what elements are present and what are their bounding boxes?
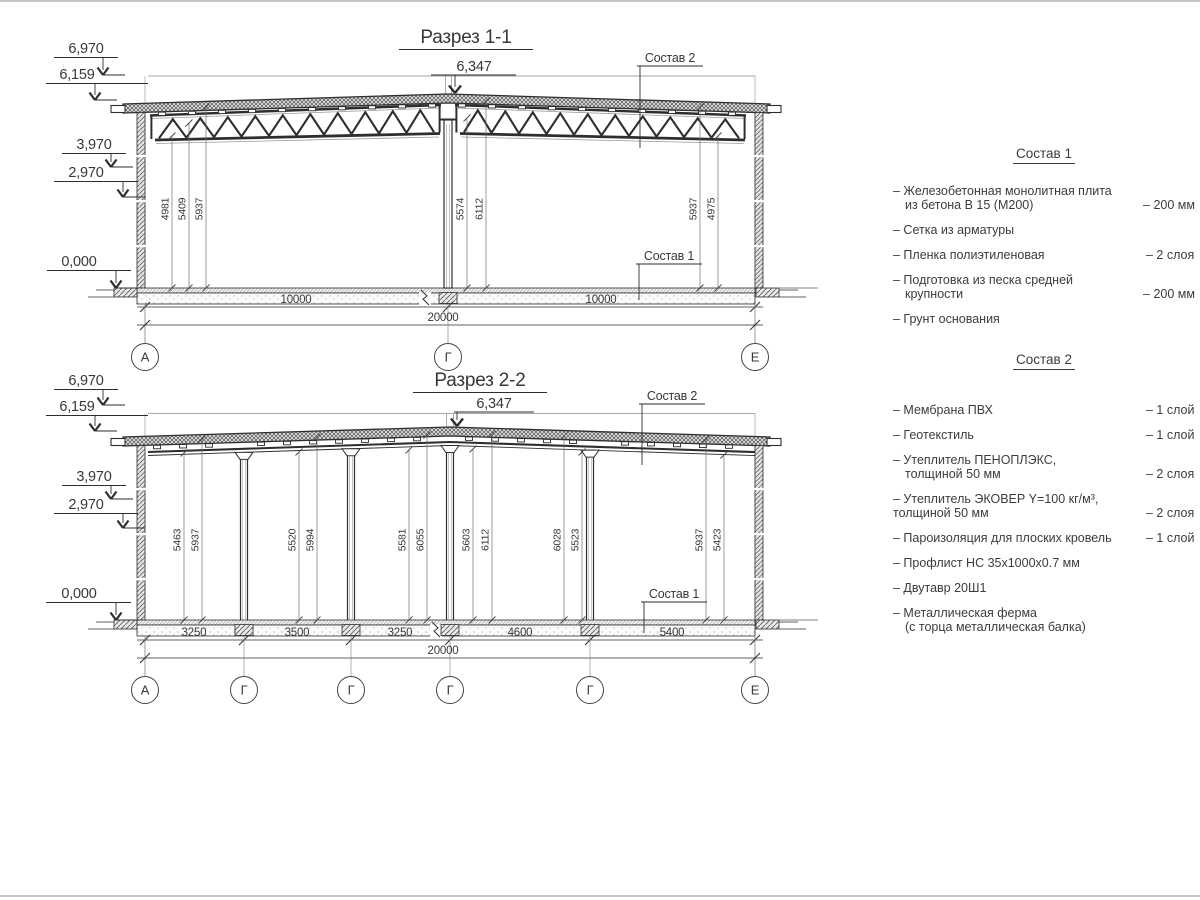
material-name: – Утеплитель ПЕНОПЛЭКС, [893, 453, 1146, 467]
material-item: – Пароизоляция для плоских кровель – 1 с… [893, 531, 1195, 545]
axis-label: Е [751, 350, 760, 365]
material-item: – Двутавр 20Ш1 [893, 581, 1195, 595]
material-name: – Железобетонная монолитная плита [893, 184, 1143, 198]
elevation-label: 3,970 [76, 469, 111, 485]
material-name: – Подготовка из песка средней [893, 273, 1143, 287]
interior-dimension-label: 5581 [397, 528, 409, 551]
material-item: – Грунт основания [893, 312, 1195, 326]
material-item: – Мембрана ПВХ – 1 слой [893, 403, 1195, 417]
ridge-elevation-label: 6,347 [456, 59, 491, 75]
interior-dimension-label: 6112 [474, 198, 486, 220]
material-item: – Пленка полиэтиленовая – 2 слоя [893, 248, 1195, 262]
material-value: – 2 слоя [1146, 467, 1195, 481]
interior-dimension-label: 6112 [480, 529, 492, 551]
axis-label: Г [587, 683, 594, 698]
elevation-label: 0,000 [61, 586, 96, 602]
composition-callout: Состав 2 [647, 389, 697, 403]
drawing-sheet: { "ink": "#2e2e2e", "section1": { "title… [0, 0, 1200, 900]
material-name-line2: (с торца металлическая балка) [893, 620, 1146, 634]
span-dimension-label: 4600 [508, 627, 533, 639]
elevation-label: 2,970 [68, 497, 103, 513]
composition-callout: Состав 2 [645, 51, 695, 65]
axis-label: А [141, 683, 150, 698]
elevation-label: 6,970 [68, 41, 103, 57]
ridge-elevation-label: 6,347 [476, 396, 511, 412]
legend-2-title: Состав 2 [1013, 352, 1075, 370]
material-item: – Геотекстиль – 1 слой [893, 428, 1195, 442]
elevation-label: 6,159 [59, 399, 94, 415]
material-name: – Пароизоляция для плоских кровель [893, 531, 1146, 545]
composition-callout: Состав 1 [649, 587, 699, 601]
material-value: – 1 слой [1146, 403, 1195, 417]
material-value: – 200 мм [1143, 287, 1195, 301]
composition-list-2: Состав 2 – Мембрана ПВХ – 1 слой – Геоте… [893, 351, 1195, 645]
section-1-drawing: 4981540959375574611259374975АГЕ100001000… [46, 27, 818, 371]
total-dimension-label: 20000 [428, 312, 459, 324]
elevation-label: 6,159 [59, 67, 94, 83]
axis-label: Г [447, 683, 454, 698]
material-item: – Утеплитель ЭКОВЕР Y=100 кг/м³, толщино… [893, 492, 1195, 520]
interior-dimension-label: 6055 [415, 528, 427, 551]
material-value: – 2 слоя [1146, 506, 1195, 520]
material-item: – Сетка из арматуры [893, 223, 1195, 237]
material-name-line2: толщиной 50 мм [893, 506, 1146, 520]
elevation-label: 3,970 [76, 137, 111, 153]
material-value: – 200 мм [1143, 198, 1195, 212]
interior-dimension-label: 5423 [712, 528, 724, 551]
material-item: – Подготовка из песка средней крупности … [893, 273, 1195, 301]
span-dimension-label: 3250 [182, 627, 207, 639]
span-dimension-label: 10000 [281, 294, 312, 306]
elevation-label: 2,970 [68, 165, 103, 181]
interior-dimension-label: 4975 [706, 197, 718, 220]
axis-label: Е [751, 683, 760, 698]
section-title: Разрез 1-1 [420, 27, 511, 48]
axis-label: Г [241, 683, 248, 698]
total-dimension-label: 20000 [428, 645, 459, 657]
interior-dimension-label: 5937 [694, 528, 706, 551]
material-name: – Мембрана ПВХ [893, 403, 1146, 417]
material-value: – 1 слой [1146, 428, 1195, 442]
material-value: – 1 слой [1146, 531, 1195, 545]
material-value: – 2 слоя [1146, 248, 1195, 262]
material-name: – Утеплитель ЭКОВЕР Y=100 кг/м³, [893, 492, 1146, 506]
interior-dimension-label: 4981 [160, 197, 172, 220]
span-dimension-label: 3500 [285, 627, 310, 639]
material-item: – Утеплитель ПЕНОПЛЭКС, толщиной 50 мм –… [893, 453, 1195, 481]
interior-dimension-label: 5463 [172, 528, 184, 551]
material-name: – Металлическая ферма [893, 606, 1146, 620]
interior-dimension-label: 5937 [190, 528, 202, 551]
span-dimension-label: 5400 [660, 627, 685, 639]
axis-label: А [141, 350, 150, 365]
span-dimension-label: 10000 [586, 294, 617, 306]
axis-label: Г [445, 350, 452, 365]
material-item: – Профлист НС 35х1000х0.7 мм [893, 556, 1195, 570]
material-item: – Металлическая ферма (с торца металличе… [893, 606, 1195, 634]
material-name-line2: из бетона В 15 (М200) [893, 198, 1143, 212]
material-name: – Сетка из арматуры [893, 223, 1146, 237]
interior-dimension-label: 5937 [194, 197, 206, 220]
material-name-line2: крупности [893, 287, 1143, 301]
interior-dimension-label: 5574 [455, 197, 467, 220]
material-item: – Железобетонная монолитная плита из бет… [893, 184, 1195, 212]
interior-dimension-label: 6028 [552, 528, 564, 551]
interior-dimension-label: 5523 [570, 528, 582, 551]
legend-1-title: Состав 1 [1013, 146, 1075, 164]
material-name-line2: толщиной 50 мм [893, 467, 1146, 481]
material-name: – Двутавр 20Ш1 [893, 581, 1146, 595]
material-name: – Пленка полиэтиленовая [893, 248, 1146, 262]
interior-dimension-label: 5937 [688, 197, 700, 220]
material-name: – Грунт основания [893, 312, 1146, 326]
interior-dimension-label: 5994 [305, 528, 317, 551]
section-2-drawing: 5463593755205994558160555603611260285523… [46, 370, 818, 704]
interior-dimension-label: 5603 [461, 528, 473, 551]
section-title: Разрез 2-2 [434, 370, 525, 391]
axis-label: Г [348, 683, 355, 698]
material-name: – Профлист НС 35х1000х0.7 мм [893, 556, 1146, 570]
elevation-label: 6,970 [68, 373, 103, 389]
elevation-label: 0,000 [61, 254, 96, 270]
interior-dimension-label: 5409 [177, 197, 189, 220]
interior-dimension-label: 5520 [287, 528, 299, 551]
composition-callout: Состав 1 [644, 249, 694, 263]
span-dimension-label: 3250 [388, 627, 413, 639]
material-name: – Геотекстиль [893, 428, 1146, 442]
composition-list-1: Состав 1 – Железобетонная монолитная пли… [893, 145, 1195, 337]
